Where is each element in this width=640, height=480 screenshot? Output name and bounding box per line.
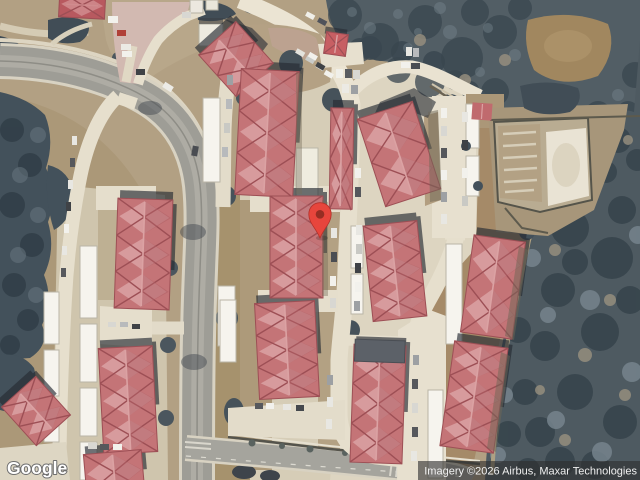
svg-text:Google: Google bbox=[7, 458, 68, 478]
svg-text:Imagery ©2026 Airbus, Maxar Te: Imagery ©2026 Airbus, Maxar Technologies bbox=[424, 466, 637, 478]
